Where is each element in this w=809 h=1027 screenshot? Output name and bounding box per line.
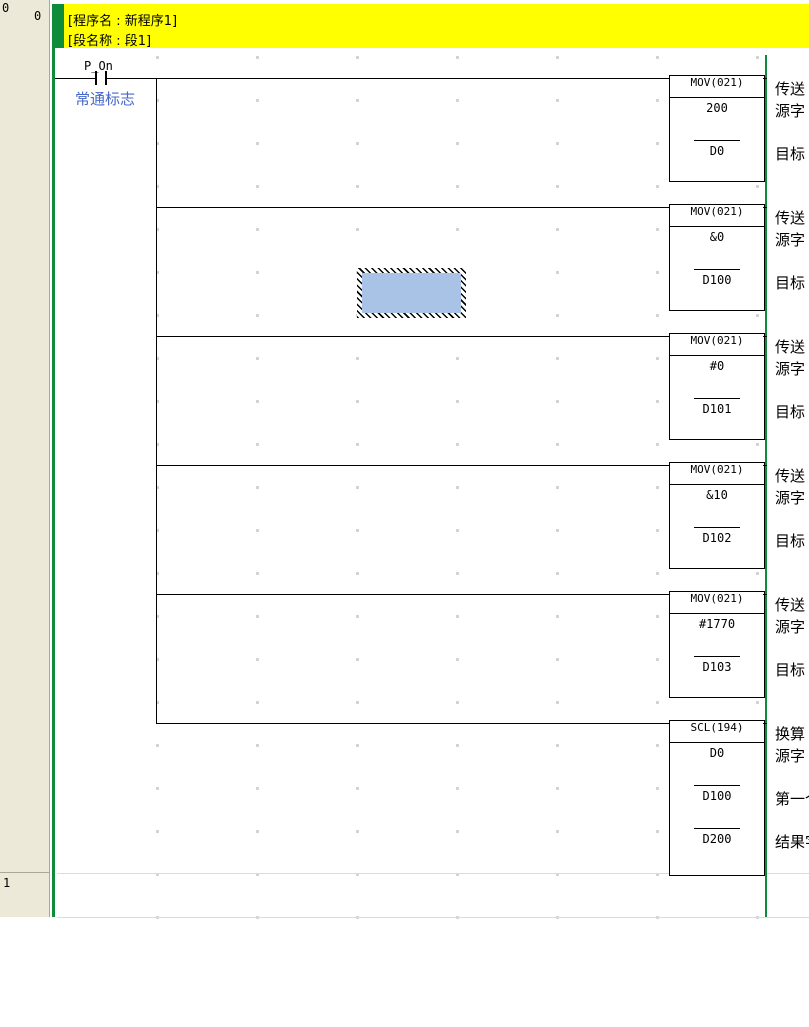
grid-dot: [456, 787, 459, 790]
branch-vertical-line: [156, 78, 157, 723]
grid-dot: [256, 701, 259, 704]
grid-dot: [656, 99, 659, 102]
power-rail-segment: [107, 78, 669, 79]
instruction-desc: 传送: [775, 336, 805, 357]
grid-dot: [356, 56, 359, 59]
grid-dot: [356, 99, 359, 102]
grid-dot: [756, 56, 759, 59]
operand-desc: 源字: [775, 745, 805, 766]
instruction-block-mov-1[interactable]: MOV(021) 200 D0: [669, 75, 765, 182]
grid-dot: [556, 443, 559, 446]
grid-dot: [356, 142, 359, 145]
grid-dot: [156, 830, 159, 833]
grid-dot: [456, 529, 459, 532]
grid-dot: [556, 99, 559, 102]
grid-dot: [556, 572, 559, 575]
contact-left-bar[interactable]: [95, 71, 97, 85]
grid-dot: [356, 486, 359, 489]
branch-line: [156, 207, 669, 208]
right-bus-bar: [765, 55, 767, 917]
grid-dot: [256, 787, 259, 790]
grid-dot: [256, 400, 259, 403]
operand-source[interactable]: 200: [670, 101, 764, 115]
grid-dot: [256, 271, 259, 274]
step-number-0[interactable]: 0: [34, 9, 41, 23]
instruction-block-mov-4[interactable]: MOV(021) &10 D102: [669, 462, 765, 569]
operand-desc: 源字: [775, 229, 805, 250]
grid-dot: [556, 185, 559, 188]
grid-dot: [356, 615, 359, 618]
operand-desc: 源字: [775, 358, 805, 379]
grid-dot: [556, 529, 559, 532]
operand-source[interactable]: &0: [670, 230, 764, 244]
contact-right-bar[interactable]: [105, 71, 107, 85]
instruction-block-scl[interactable]: SCL(194) D0 D100 D200: [669, 720, 765, 876]
grid-dot: [656, 314, 659, 317]
instruction-title[interactable]: MOV(021): [670, 205, 764, 227]
operand-desc: 源字: [775, 487, 805, 508]
instruction-title[interactable]: MOV(021): [670, 463, 764, 485]
operand-desc: 目标: [775, 401, 805, 422]
instruction-block-mov-3[interactable]: MOV(021) #0 D101: [669, 333, 765, 440]
grid-dot: [456, 142, 459, 145]
grid-dot: [656, 615, 659, 618]
operand-source[interactable]: D0: [670, 746, 764, 760]
operand-dest[interactable]: D0: [670, 144, 764, 158]
operand-desc: 源字: [775, 100, 805, 121]
grid-dot: [356, 744, 359, 747]
operand-desc: 源字: [775, 616, 805, 637]
grid-dot: [456, 99, 459, 102]
grid-dot: [356, 658, 359, 661]
grid-dot: [256, 615, 259, 618]
grid-dot: [556, 787, 559, 790]
selection-fill: [362, 273, 461, 313]
operand-desc: 结果字: [775, 831, 809, 852]
grid-dot: [656, 443, 659, 446]
operand-parameter[interactable]: D100: [670, 789, 764, 803]
grid-dot: [256, 357, 259, 360]
output-connector: [763, 594, 767, 595]
ladder-editor: 0 0 1 [程序名 : 新程序1] [段名称 : 段1] P_On 常通标志 …: [0, 0, 809, 1027]
grid-dot: [356, 443, 359, 446]
grid-dot: [256, 185, 259, 188]
instruction-desc: 传送: [775, 78, 805, 99]
section-header-stripe: [52, 4, 64, 48]
grid-dot: [556, 228, 559, 231]
grid-dot: [256, 443, 259, 446]
operand-desc: 目标: [775, 659, 805, 680]
rung-number-1[interactable]: 1: [3, 876, 10, 890]
output-connector: [763, 207, 767, 208]
grid-dot: [656, 529, 659, 532]
operand-source[interactable]: #1770: [670, 617, 764, 631]
grid-dot: [556, 658, 559, 661]
grid-dot: [556, 357, 559, 360]
output-connector: [763, 465, 767, 466]
left-bus-bar: [52, 48, 55, 917]
grid-dot: [256, 314, 259, 317]
grid-dot: [456, 56, 459, 59]
output-connector: [763, 78, 767, 79]
instruction-desc: 传送: [775, 594, 805, 615]
operand-desc: 目标: [775, 530, 805, 551]
grid-dot: [656, 830, 659, 833]
grid-dot: [456, 400, 459, 403]
grid-dot: [556, 56, 559, 59]
grid-dot: [456, 228, 459, 231]
output-connector: [763, 336, 767, 337]
grid-dot: [456, 486, 459, 489]
program-name-text: [程序名 : 新程序1]: [68, 10, 177, 29]
power-rail-segment: [55, 78, 95, 79]
grid-dot: [556, 744, 559, 747]
grid-dot: [756, 314, 759, 317]
operand-source[interactable]: &10: [670, 488, 764, 502]
grid-dot: [656, 658, 659, 661]
grid-dot: [556, 271, 559, 274]
grid-dot: [456, 443, 459, 446]
grid-dot: [256, 142, 259, 145]
instruction-desc: 传送: [775, 207, 805, 228]
rung-margin[interactable]: 0 0 1: [0, 0, 50, 917]
grid-dot: [256, 99, 259, 102]
instruction-block-mov-5[interactable]: MOV(021) #1770 D103: [669, 591, 765, 698]
instruction-title[interactable]: MOV(021): [670, 592, 764, 614]
operand-dest[interactable]: D101: [670, 402, 764, 416]
grid-dot: [256, 658, 259, 661]
section-header: [程序名 : 新程序1] [段名称 : 段1]: [64, 4, 809, 48]
operand-result[interactable]: D200: [670, 832, 764, 846]
grid-dot: [256, 744, 259, 747]
rung-margin-divider: [0, 872, 49, 873]
instruction-title[interactable]: MOV(021): [670, 334, 764, 356]
grid-dot: [556, 142, 559, 145]
grid-dot: [656, 357, 659, 360]
grid-dot: [556, 314, 559, 317]
grid-dot: [356, 529, 359, 532]
grid-dot: [556, 486, 559, 489]
grid-dot: [356, 701, 359, 704]
operand-source[interactable]: #0: [670, 359, 764, 373]
grid-dot: [356, 357, 359, 360]
grid-dot: [256, 572, 259, 575]
grid-dot: [356, 787, 359, 790]
grid-dot: [756, 185, 759, 188]
rung-number-0[interactable]: 0: [2, 1, 9, 15]
output-connector: [763, 723, 767, 724]
grid-dot: [256, 830, 259, 833]
operand-dest[interactable]: D100: [670, 273, 764, 287]
instruction-desc: 换算: [775, 723, 805, 744]
grid-dot: [456, 744, 459, 747]
grid-dot: [556, 830, 559, 833]
branch-line: [156, 336, 669, 337]
grid-dot: [156, 744, 159, 747]
branch-line: [156, 594, 669, 595]
grid-dot: [556, 400, 559, 403]
grid-dot: [356, 400, 359, 403]
operand-dest[interactable]: D103: [670, 660, 764, 674]
grid-dot: [556, 701, 559, 704]
grid-dot: [456, 615, 459, 618]
grid-dot: [456, 658, 459, 661]
branch-line: [156, 465, 669, 466]
instruction-desc: 传送: [775, 465, 805, 486]
grid-dot: [256, 529, 259, 532]
grid-dot: [356, 228, 359, 231]
grid-dot: [456, 830, 459, 833]
grid-dot: [356, 185, 359, 188]
grid-dot: [356, 572, 359, 575]
grid-dot: [756, 572, 759, 575]
grid-dot: [256, 486, 259, 489]
grid-dot: [656, 701, 659, 704]
operand-dest[interactable]: D102: [670, 531, 764, 545]
grid-dot: [556, 615, 559, 618]
grid-dot: [656, 56, 659, 59]
instruction-title[interactable]: SCL(194): [670, 721, 764, 743]
selection-rectangle[interactable]: [357, 268, 466, 318]
grid-dot: [456, 701, 459, 704]
grid-dot: [456, 185, 459, 188]
grid-dot: [456, 357, 459, 360]
grid-dot: [256, 228, 259, 231]
rung-boundary-line: [57, 917, 809, 918]
contact-comment: 常通标志: [75, 88, 135, 109]
operand-desc: 第一个: [775, 788, 809, 809]
grid-dot: [656, 271, 659, 274]
grid-dot: [656, 486, 659, 489]
instruction-title[interactable]: MOV(021): [670, 76, 764, 98]
grid-dot: [456, 572, 459, 575]
grid-dot: [756, 701, 759, 704]
grid-dot: [656, 142, 659, 145]
grid-dot: [656, 787, 659, 790]
grid-dot: [656, 744, 659, 747]
grid-dot: [656, 185, 659, 188]
grid-dot: [256, 56, 259, 59]
contact-label[interactable]: P_On: [84, 59, 113, 73]
grid-dot: [356, 830, 359, 833]
grid-dot: [656, 228, 659, 231]
branch-line: [156, 723, 669, 724]
grid-dot: [656, 572, 659, 575]
grid-dot: [656, 400, 659, 403]
operand-desc: 目标: [775, 143, 805, 164]
grid-dot: [156, 56, 159, 59]
grid-dot: [156, 787, 159, 790]
grid-dot: [756, 443, 759, 446]
instruction-block-mov-2[interactable]: MOV(021) &0 D100: [669, 204, 765, 311]
section-name-text: [段名称 : 段1]: [68, 30, 151, 49]
operand-desc: 目标: [775, 272, 805, 293]
